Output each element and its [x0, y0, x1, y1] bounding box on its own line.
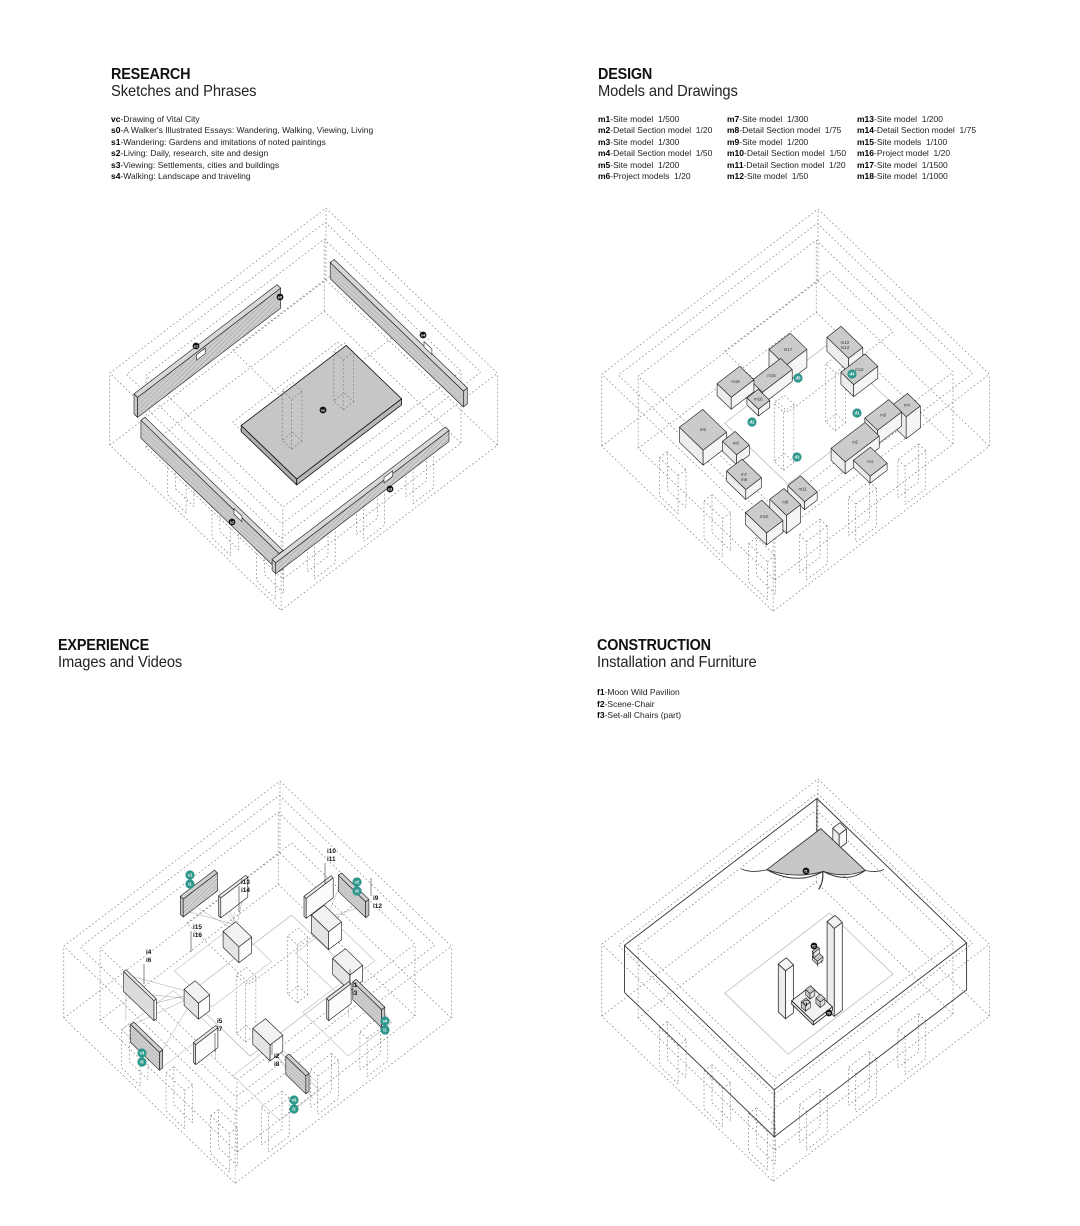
svg-text:s1: s1 [194, 343, 199, 348]
svg-text:m16: m16 [754, 397, 763, 402]
svg-text:i3: i3 [352, 990, 358, 997]
svg-text:m18: m18 [731, 379, 740, 384]
svg-text:i7: i7 [217, 1026, 223, 1033]
svg-text:i8: i8 [274, 1061, 280, 1068]
svg-text:m4: m4 [904, 403, 911, 408]
svg-text:v5: v5 [292, 1097, 297, 1102]
svg-text:d3: d3 [795, 454, 801, 459]
svg-text:s3: s3 [388, 486, 393, 491]
svg-text:i13: i13 [241, 879, 250, 886]
svg-text:m12: m12 [855, 367, 864, 372]
svg-text:m1: m1 [867, 459, 874, 464]
svg-text:i1: i1 [352, 982, 358, 989]
svg-text:vc: vc [321, 407, 326, 412]
svg-text:m8: m8 [741, 477, 748, 482]
svg-text:i14: i14 [241, 887, 250, 894]
svg-text:i15: i15 [193, 924, 202, 931]
svg-text:m17: m17 [784, 347, 793, 352]
svg-text:m15: m15 [767, 373, 776, 378]
svg-text:s0: s0 [278, 294, 283, 299]
svg-text:i12: i12 [373, 903, 382, 910]
svg-text:d4: d4 [850, 371, 856, 376]
svg-text:m11: m11 [798, 486, 807, 491]
svg-text:d5: d5 [796, 375, 802, 380]
svg-text:v2: v2 [355, 879, 360, 884]
svg-text:i2: i2 [274, 1053, 280, 1060]
svg-text:m9: m9 [782, 499, 789, 504]
svg-text:i6: i6 [146, 957, 152, 964]
svg-text:m3: m3 [880, 413, 887, 418]
svg-text:m5: m5 [700, 427, 707, 432]
svg-text:i10: i10 [327, 848, 336, 855]
svg-text:i5: i5 [217, 1018, 223, 1025]
svg-text:i9: i9 [373, 895, 379, 902]
svg-text:i16: i16 [193, 932, 202, 939]
svg-text:s2: s2 [230, 519, 235, 524]
svg-text:m14: m14 [841, 345, 850, 350]
svg-text:i11: i11 [327, 856, 336, 863]
svg-text:s4: s4 [421, 332, 426, 337]
svg-text:i4: i4 [146, 949, 152, 956]
svg-text:m6: m6 [733, 441, 740, 446]
svg-text:v4: v4 [383, 1018, 388, 1023]
svg-text:m2: m2 [852, 440, 859, 445]
svg-text:d1: d1 [855, 410, 861, 415]
svg-text:m10: m10 [760, 514, 769, 519]
svg-text:v3: v3 [140, 1050, 145, 1055]
svg-text:d2: d2 [750, 419, 756, 424]
svg-text:v1: v1 [188, 872, 193, 877]
